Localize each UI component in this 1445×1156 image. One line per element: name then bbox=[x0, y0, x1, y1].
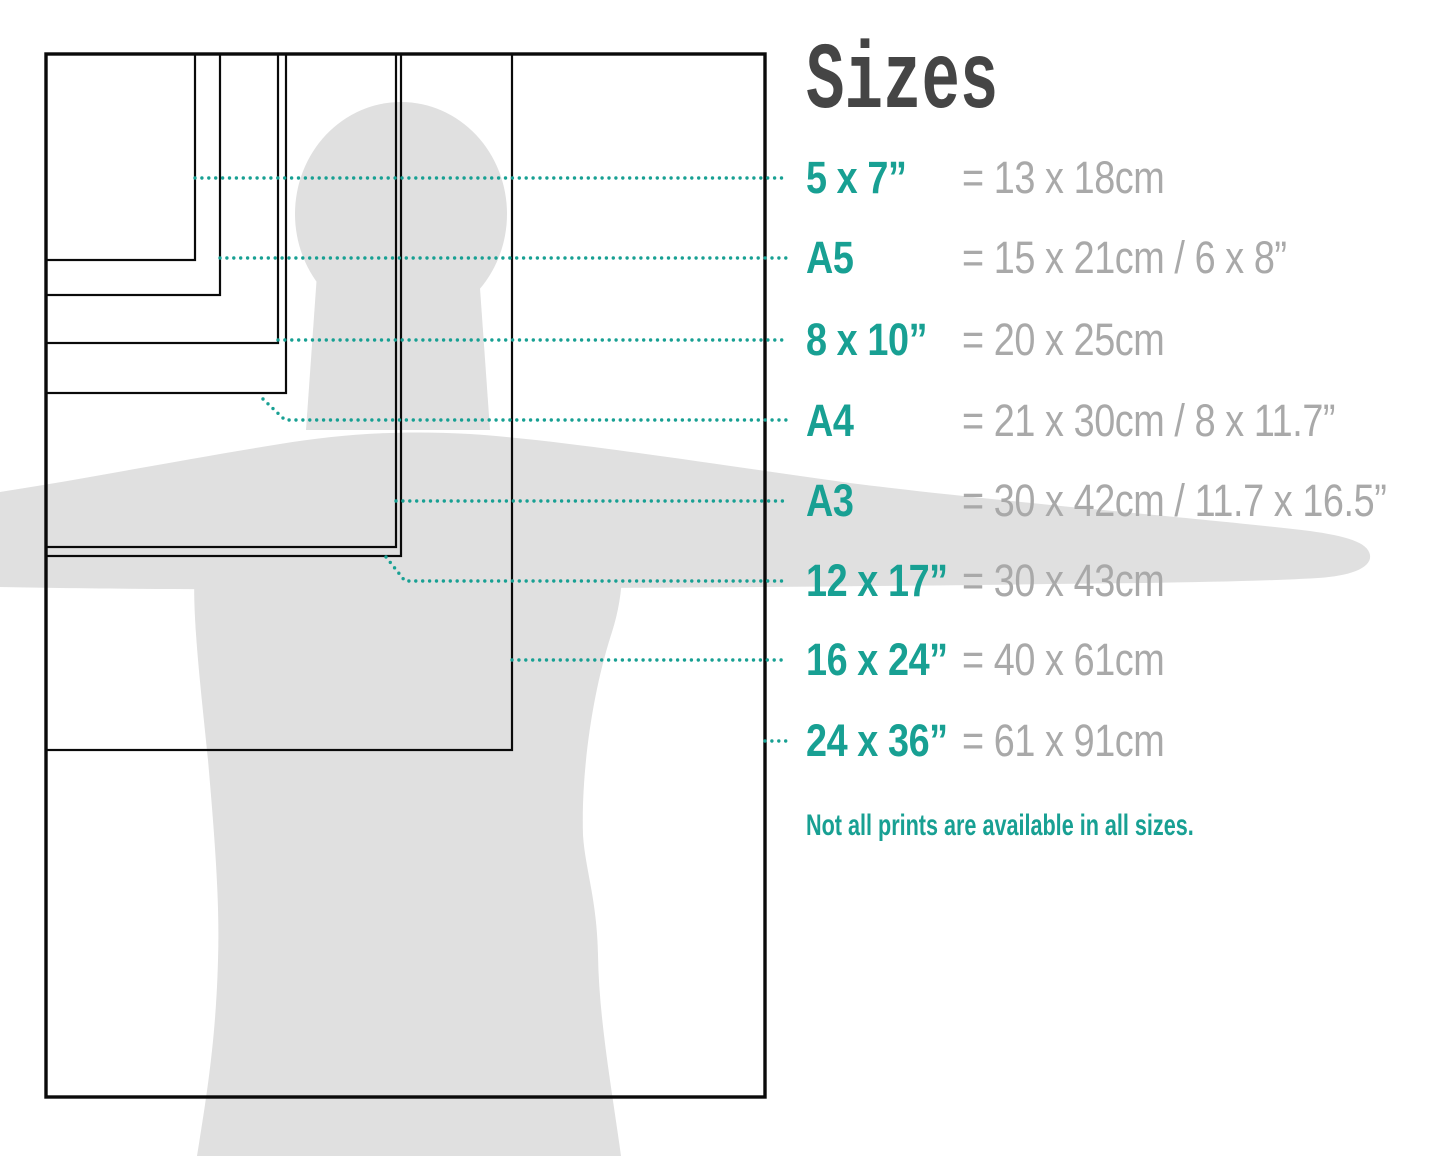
size-row-label: 8 x 10” bbox=[806, 314, 927, 366]
size-row-a5: A5 = 15 x 21cm / 6 x 8” bbox=[0, 232, 1445, 284]
size-guide-infographic: Sizes 5 x 7” = 13 x 18cm A5 = 15 x 21cm … bbox=[0, 0, 1445, 1156]
size-row-value: = 21 x 30cm / 8 x 11.7” bbox=[962, 395, 1335, 447]
size-row-12x17: 12 x 17” = 30 x 43cm bbox=[0, 555, 1445, 607]
size-row-5x7: 5 x 7” = 13 x 18cm bbox=[0, 152, 1445, 204]
size-row-value: = 30 x 43cm bbox=[962, 555, 1164, 607]
size-row-label: 12 x 17” bbox=[806, 555, 948, 607]
size-row-label: 5 x 7” bbox=[806, 152, 906, 204]
availability-note: Not all prints are available in all size… bbox=[806, 806, 1345, 846]
page-title: Sizes bbox=[806, 30, 1091, 135]
size-row-16x24: 16 x 24” = 40 x 61cm bbox=[0, 634, 1445, 686]
size-row-a3: A3 = 30 x 42cm / 11.7 x 16.5” bbox=[0, 475, 1445, 527]
page-title-text: Sizes bbox=[806, 30, 998, 135]
size-row-value: = 20 x 25cm bbox=[962, 314, 1164, 366]
size-row-value: = 30 x 42cm / 11.7 x 16.5” bbox=[962, 475, 1386, 527]
size-row-value: = 15 x 21cm / 6 x 8” bbox=[962, 232, 1287, 284]
size-row-a4: A4 = 21 x 30cm / 8 x 11.7” bbox=[0, 395, 1445, 447]
size-row-label: 24 x 36” bbox=[806, 715, 948, 767]
size-row-label: A3 bbox=[806, 475, 853, 527]
size-row-label: A5 bbox=[806, 232, 853, 284]
size-row-value: = 13 x 18cm bbox=[962, 152, 1164, 204]
size-row-label: A4 bbox=[806, 395, 853, 447]
size-row-8x10: 8 x 10” = 20 x 25cm bbox=[0, 314, 1445, 366]
availability-note-text: Not all prints are available in all size… bbox=[806, 806, 1194, 846]
size-row-24x36: 24 x 36” = 61 x 91cm bbox=[0, 715, 1445, 767]
size-row-value: = 40 x 61cm bbox=[962, 634, 1164, 686]
size-row-value: = 61 x 91cm bbox=[962, 715, 1164, 767]
size-row-label: 16 x 24” bbox=[806, 634, 948, 686]
